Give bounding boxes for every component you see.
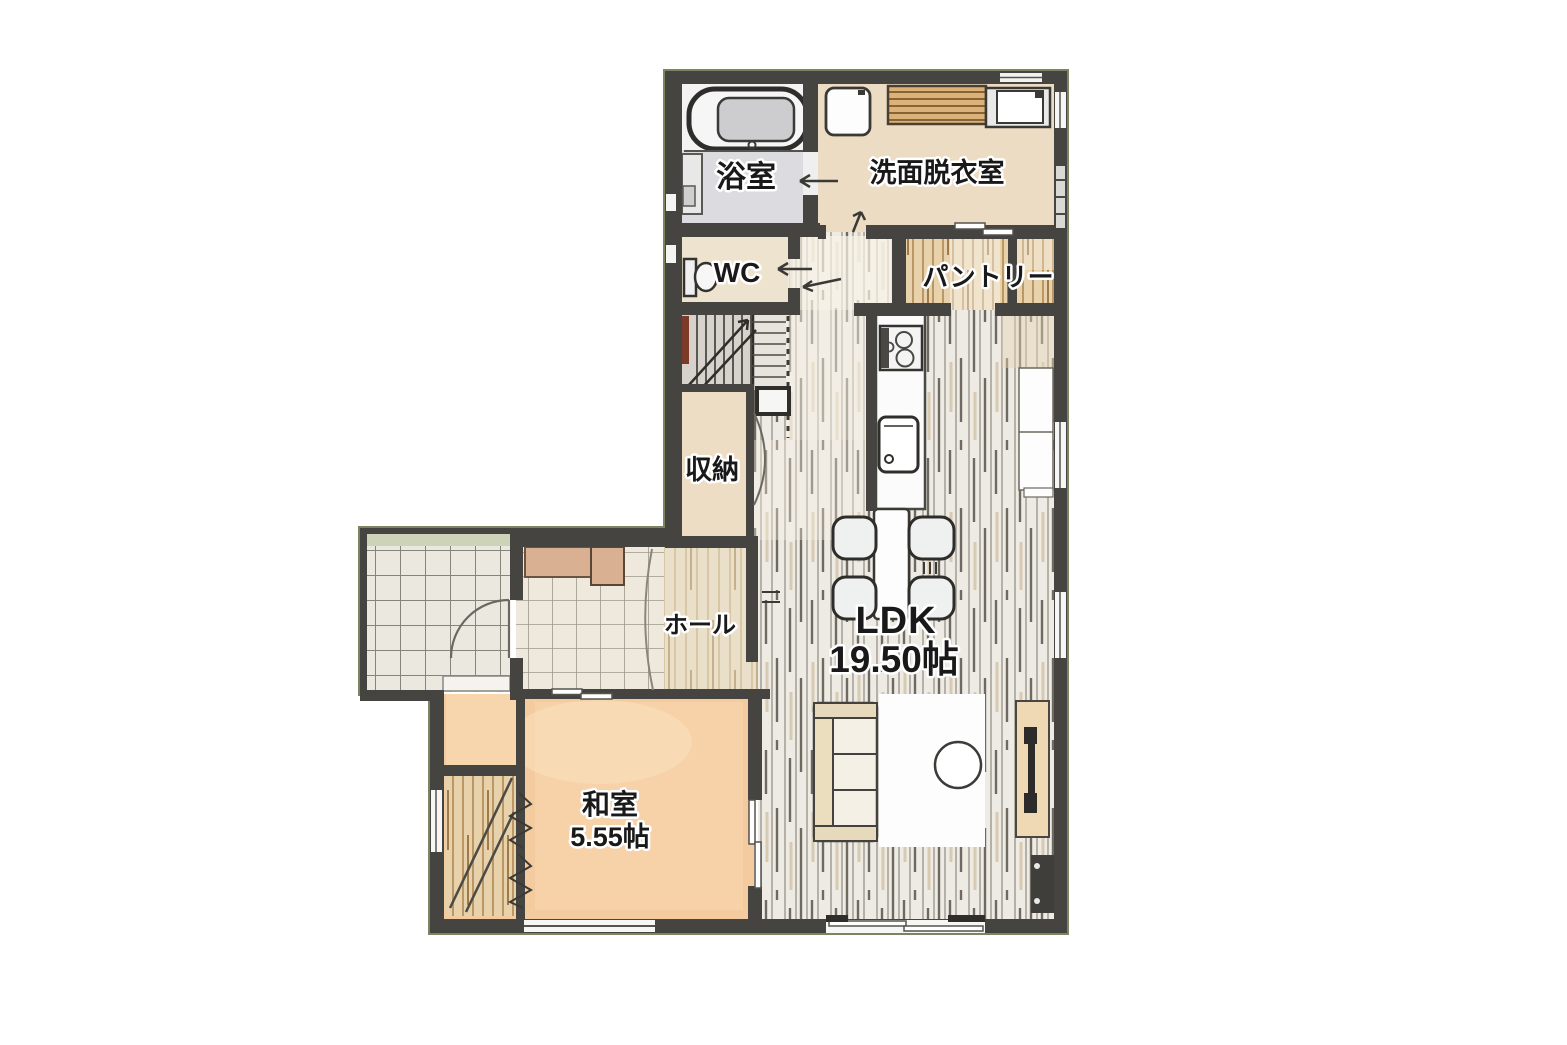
svg-text:和室: 和室 <box>582 788 638 820</box>
svg-text:ホール: ホール <box>664 612 736 639</box>
svg-text:パントリー: パントリー <box>922 262 1053 292</box>
svg-text:LDK: LDK <box>855 600 936 642</box>
svg-text:WC: WC <box>714 257 761 288</box>
svg-text:19.50帖: 19.50帖 <box>829 639 959 680</box>
svg-text:収納: 収納 <box>685 454 739 485</box>
svg-text:5.55帖: 5.55帖 <box>570 822 650 852</box>
svg-text:洗面脱衣室: 洗面脱衣室 <box>870 157 1005 188</box>
svg-text:浴室: 浴室 <box>716 160 776 194</box>
